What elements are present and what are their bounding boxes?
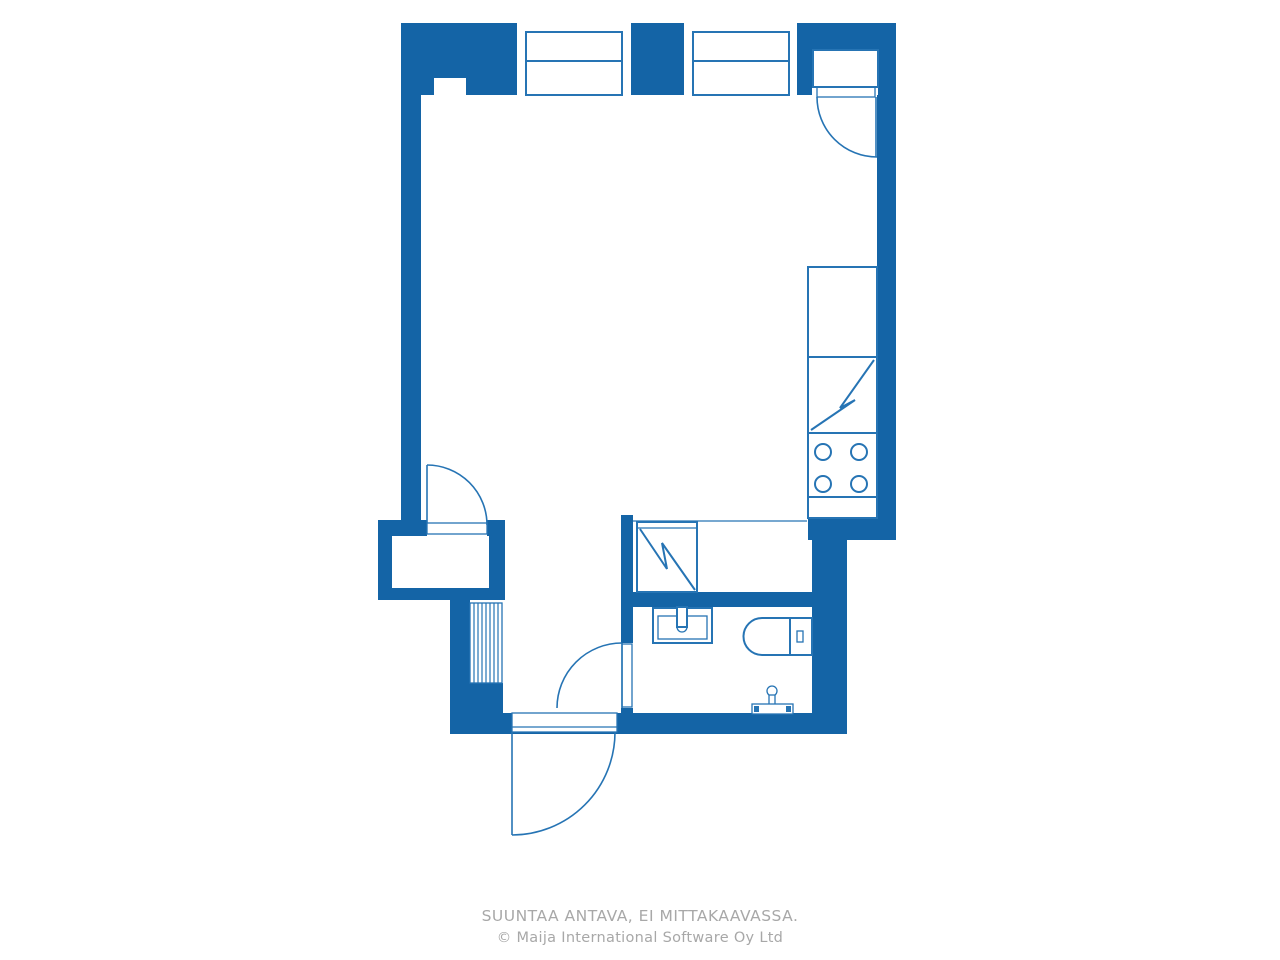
- bathroom-door: [557, 643, 632, 708]
- floor-plan-page: SUUNTAA ANTAVA, EI MITTAKAAVASSA. © Maij…: [0, 0, 1280, 960]
- bumpout-interior: [392, 536, 489, 588]
- floor-plan: [0, 0, 1280, 960]
- closet-zigzag-icon: [640, 529, 695, 590]
- balcony-door-swing-arc: [817, 97, 877, 157]
- refrigerator-icon: [811, 360, 874, 430]
- burner: [815, 476, 831, 492]
- caption-line-2: © Maija International Software Oy Ltd: [0, 928, 1280, 948]
- shower-bar-cap-right: [786, 706, 791, 712]
- window-2-opening: [684, 23, 797, 95]
- wall-alcove-bottom: [621, 592, 812, 607]
- wall-right: [877, 23, 896, 540]
- stove-icon: [815, 444, 867, 492]
- toilet-tank: [790, 618, 812, 655]
- interior-door-swing-arc: [427, 465, 487, 525]
- toilet-button: [797, 631, 803, 642]
- bathroom-sink-icon: [653, 607, 712, 643]
- toilet-icon: [744, 618, 813, 655]
- caption: SUUNTAA ANTAVA, EI MITTAKAAVASSA. © Maij…: [0, 906, 1280, 948]
- wall-left: [401, 23, 421, 530]
- wardrobe-hatch-lines: [474, 603, 498, 683]
- sink-faucet: [677, 607, 687, 627]
- bathroom-door-swing-arc: [557, 643, 622, 708]
- burner: [851, 444, 867, 460]
- entry-door-swing-arc: [512, 732, 615, 835]
- wall-right-lower: [812, 522, 847, 734]
- balcony-door-opening: [812, 50, 878, 95]
- burner: [851, 476, 867, 492]
- window-1-opening: [517, 23, 631, 95]
- kitchen-units: [808, 267, 877, 518]
- entry-door-opening: [512, 713, 617, 732]
- wall-entry-left-block: [450, 683, 503, 734]
- wardrobe-rack: [470, 603, 502, 683]
- toilet-bowl: [744, 618, 791, 655]
- wall-bottom: [450, 713, 847, 734]
- shower-mixer-icon: [752, 686, 793, 714]
- shower-bar-cap-left: [754, 706, 759, 712]
- burner: [815, 444, 831, 460]
- caption-line-1: SUUNTAA ANTAVA, EI MITTAKAAVASSA.: [0, 906, 1280, 926]
- wall-notch: [434, 78, 466, 95]
- walls: [378, 23, 896, 734]
- alcove: [633, 521, 807, 592]
